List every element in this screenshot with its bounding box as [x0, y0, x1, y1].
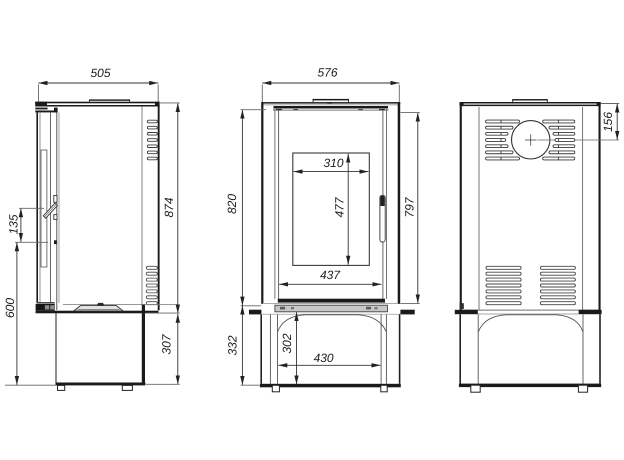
svg-text:820: 820: [225, 194, 239, 214]
svg-text:430: 430: [314, 351, 334, 365]
svg-text:505: 505: [90, 66, 110, 80]
svg-text:797: 797: [403, 196, 417, 217]
svg-text:874: 874: [162, 197, 176, 217]
svg-text:307: 307: [160, 333, 174, 354]
svg-text:156: 156: [601, 112, 615, 132]
svg-text:332: 332: [226, 335, 240, 355]
svg-text:600: 600: [3, 298, 17, 318]
svg-text:310: 310: [323, 156, 343, 170]
svg-text:576: 576: [317, 65, 337, 79]
svg-text:477: 477: [333, 196, 347, 217]
svg-text:135: 135: [7, 214, 21, 234]
svg-text:437: 437: [320, 268, 341, 282]
svg-text:302: 302: [280, 333, 294, 353]
